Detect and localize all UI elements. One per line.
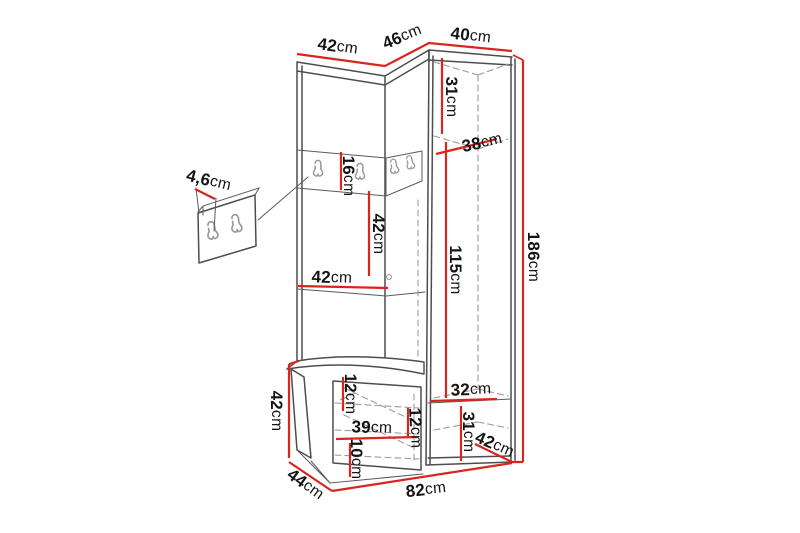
dim-bench-depth-label: 44cm xyxy=(284,464,328,503)
coat-hook-icon xyxy=(313,160,322,176)
callout-pointer-line xyxy=(258,177,308,220)
dim-hook-panel-height-label: 16cm xyxy=(340,156,359,197)
left-cabinet xyxy=(297,62,425,364)
corner-hook-section xyxy=(385,50,429,358)
left-cabinet-shelf xyxy=(297,289,425,296)
dim-lower-compartment-width-label: 32cm xyxy=(450,379,491,399)
dim-bench-height-label: 42cm xyxy=(268,391,287,432)
bench-left-side-panel xyxy=(291,369,311,458)
dim-niche-height-label: 42cm xyxy=(370,214,389,255)
dim-bench-top-section-label: 12cm xyxy=(342,374,361,415)
dim-corner-front-width-label: 46cm xyxy=(380,20,425,53)
dim-top-right-width-label: 40cm xyxy=(450,23,493,47)
dim-bench-bottom-clearance-label: 10cm xyxy=(348,439,367,480)
dim-top-left-width-label: 42cm xyxy=(316,34,359,58)
corner-wardrobe xyxy=(426,50,515,465)
dim-hanging-space-height-label: 115cm xyxy=(447,245,466,295)
dim-drawer-front-height-label: 12cm xyxy=(406,407,426,448)
dimension-line-niche-width-42 xyxy=(298,286,388,288)
dimension-line-lower-width-32 xyxy=(430,399,497,401)
coat-hook-icon xyxy=(405,155,415,169)
dim-upper-compartment-height-label: 31cm xyxy=(443,77,462,118)
dim-total-height-label: 186cm xyxy=(525,232,544,282)
dim-total-width-label: 82cm xyxy=(405,477,448,500)
junction-marker-dot xyxy=(387,275,392,280)
dim-upper-shelf-depth-label: 38cm xyxy=(460,128,504,155)
dim-lower-compartment-height-label: 31cm xyxy=(460,412,479,453)
bench-seat xyxy=(287,357,424,374)
dimension-line-total-height xyxy=(512,60,523,462)
wall-hook-panel-detail xyxy=(196,177,308,263)
dim-niche-width-label: 42cm xyxy=(311,267,352,287)
dimension-labels: 42cm 46cm 40cm 31cm 38cm 16cm 4,6cm 42cm… xyxy=(185,20,544,504)
hallway-furniture-dimension-diagram: 42cm 46cm 40cm 31cm 38cm 16cm 4,6cm 42cm… xyxy=(0,0,800,533)
coat-hook-icon xyxy=(389,159,399,174)
diagram-canvas: 42cm 46cm 40cm 31cm 38cm 16cm 4,6cm 42cm… xyxy=(0,0,800,533)
dim-hook-panel-thickness-label: 4,6cm xyxy=(185,165,234,194)
dimension-line-panel-46mm xyxy=(195,189,215,199)
dim-drawer-width-label: 39cm xyxy=(351,417,392,437)
wardrobe-bottom-edges xyxy=(426,456,512,465)
left-cabinet-hook-row xyxy=(297,150,422,196)
